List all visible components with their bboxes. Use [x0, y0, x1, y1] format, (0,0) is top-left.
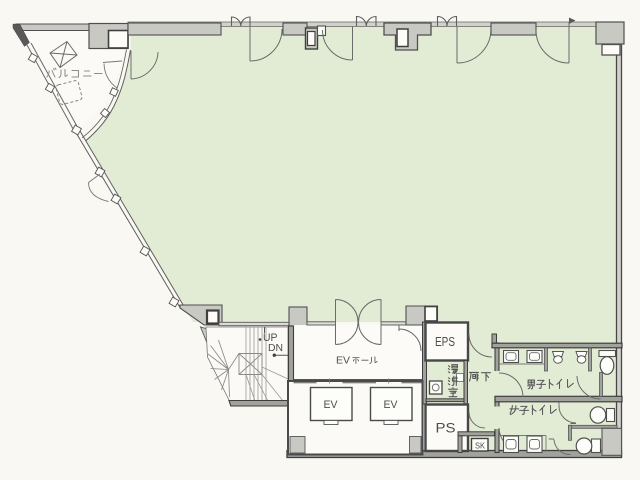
- svg-text:DN: DN: [268, 342, 283, 354]
- svg-text:PS: PS: [436, 421, 456, 436]
- svg-text:EV: EV: [336, 355, 350, 367]
- svg-text:SK: SK: [475, 441, 486, 450]
- svg-text:EPS: EPS: [435, 334, 455, 349]
- svg-text:EV: EV: [324, 399, 339, 411]
- svg-text:EV: EV: [384, 399, 399, 411]
